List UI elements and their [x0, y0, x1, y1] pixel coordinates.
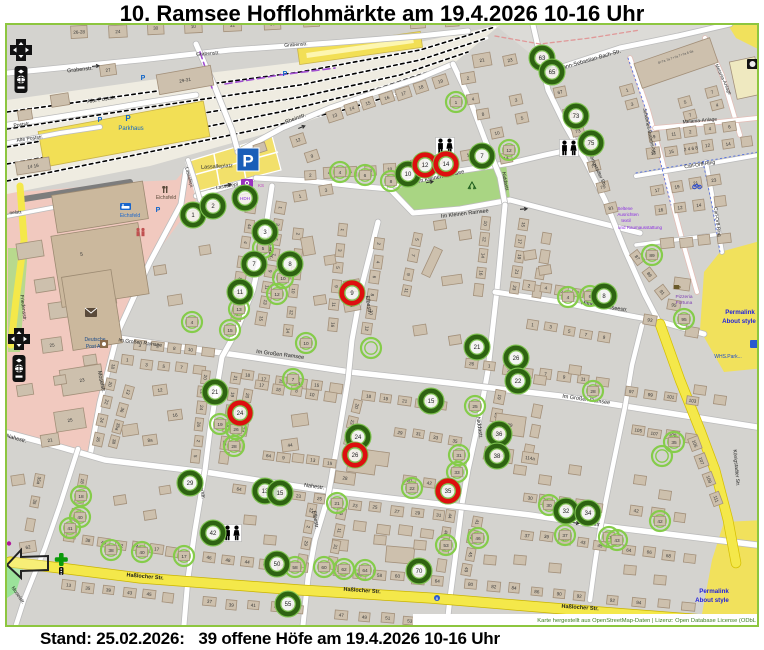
- svg-text:26: 26: [233, 427, 239, 433]
- svg-text:65: 65: [549, 70, 556, 76]
- svg-text:21: 21: [334, 501, 340, 507]
- svg-text:und Raumausstattung: und Raumausstattung: [618, 225, 663, 230]
- svg-text:90: 90: [556, 591, 562, 597]
- svg-text:21: 21: [474, 345, 481, 351]
- svg-text:P: P: [156, 207, 161, 214]
- svg-text:60: 60: [395, 573, 401, 578]
- svg-text:31: 31: [456, 453, 462, 459]
- svg-text:4: 4: [191, 320, 194, 326]
- svg-text:22: 22: [409, 486, 415, 492]
- svg-text:35: 35: [445, 489, 452, 495]
- svg-text:61: 61: [519, 630, 525, 635]
- svg-text:Eichsfeld: Eichsfeld: [156, 195, 177, 201]
- svg-text:30: 30: [153, 25, 159, 30]
- svg-text:18: 18: [78, 494, 84, 500]
- svg-text:15: 15: [428, 399, 435, 405]
- svg-text:75: 75: [588, 141, 595, 147]
- svg-text:37: 37: [562, 533, 568, 539]
- svg-text:43: 43: [614, 538, 620, 544]
- svg-text:64: 64: [435, 578, 441, 583]
- svg-text:40: 40: [77, 515, 83, 521]
- svg-text:34: 34: [585, 511, 592, 517]
- svg-text:73: 73: [573, 114, 580, 120]
- svg-text:WHS.Park...: WHS.Park...: [714, 354, 742, 360]
- svg-text:textil: textil: [621, 218, 630, 223]
- svg-text:19: 19: [217, 422, 223, 428]
- svg-text:26: 26: [513, 356, 520, 362]
- svg-text:24: 24: [355, 435, 362, 441]
- svg-text:26: 26: [352, 453, 359, 459]
- svg-text:55: 55: [285, 602, 292, 608]
- svg-text:24: 24: [199, 405, 205, 411]
- svg-text:Permalink: Permalink: [699, 588, 729, 595]
- svg-text:12: 12: [506, 148, 512, 154]
- svg-text:B: B: [436, 596, 439, 601]
- svg-text:Eichsfeld: Eichsfeld: [120, 213, 141, 219]
- svg-text:95: 95: [681, 317, 687, 323]
- svg-text:60: 60: [321, 565, 327, 571]
- svg-text:Pizzeria: Pizzeria: [675, 294, 692, 300]
- svg-text:42: 42: [210, 531, 217, 537]
- svg-text:8: 8: [390, 179, 393, 185]
- svg-text:Permalink: Permalink: [725, 309, 755, 316]
- svg-text:38: 38: [494, 454, 501, 460]
- svg-text:30: 30: [546, 503, 552, 509]
- svg-text:26-28: 26-28: [73, 29, 85, 35]
- svg-text:14: 14: [443, 162, 450, 168]
- svg-text:89: 89: [649, 253, 655, 259]
- svg-text:HDH: HDH: [240, 196, 250, 201]
- svg-text:KS: KS: [258, 183, 264, 188]
- svg-text:P: P: [242, 152, 253, 171]
- svg-text:15: 15: [277, 491, 284, 497]
- svg-text:37: 37: [207, 599, 213, 604]
- svg-text:21: 21: [212, 390, 219, 396]
- svg-text:22: 22: [515, 379, 522, 385]
- svg-text:7: 7: [292, 377, 295, 383]
- svg-text:58: 58: [377, 573, 383, 578]
- svg-text:10: 10: [303, 341, 309, 347]
- svg-text:Seltene: Seltene: [617, 206, 633, 211]
- svg-text:58: 58: [292, 565, 298, 571]
- svg-text:Fortuna: Fortuna: [676, 300, 693, 306]
- svg-text:Ausrichten: Ausrichten: [617, 212, 639, 217]
- svg-text:4: 4: [339, 170, 342, 176]
- svg-text:14: 14: [285, 328, 291, 334]
- svg-text:P: P: [98, 117, 103, 124]
- svg-text:Karte hergestellt aus OpenStre: Karte hergestellt aus OpenStreetMap-Date…: [537, 618, 756, 624]
- svg-text:17: 17: [181, 554, 187, 560]
- svg-text:28: 28: [590, 389, 596, 395]
- svg-text:P: P: [283, 71, 288, 78]
- svg-text:11: 11: [237, 290, 244, 296]
- svg-text:92: 92: [576, 593, 582, 599]
- svg-text:28: 28: [231, 444, 237, 450]
- svg-text:53: 53: [443, 543, 449, 549]
- svg-text:53: 53: [407, 618, 413, 623]
- svg-text:12: 12: [422, 163, 429, 169]
- svg-text:36: 36: [496, 432, 503, 438]
- svg-text:25: 25: [472, 404, 478, 410]
- svg-text:26: 26: [196, 422, 202, 428]
- svg-text:49: 49: [362, 614, 368, 619]
- svg-text:13: 13: [236, 307, 242, 313]
- svg-text:20: 20: [202, 374, 208, 380]
- svg-text:86: 86: [534, 589, 540, 595]
- svg-text:51: 51: [385, 615, 391, 620]
- svg-text:12: 12: [274, 292, 280, 298]
- svg-text:12: 12: [288, 309, 294, 315]
- svg-text:92: 92: [610, 598, 616, 604]
- svg-text:94: 94: [636, 600, 642, 606]
- svg-text:16: 16: [330, 322, 336, 328]
- svg-text:10: 10: [280, 276, 286, 282]
- svg-text:38: 38: [108, 548, 114, 554]
- svg-text:1: 1: [455, 100, 458, 106]
- svg-text:46: 46: [475, 536, 481, 542]
- svg-text:41: 41: [67, 526, 73, 532]
- svg-text:10: 10: [290, 288, 296, 294]
- svg-text:50: 50: [274, 562, 281, 568]
- svg-text:84: 84: [511, 585, 517, 591]
- svg-text:41: 41: [251, 603, 257, 608]
- svg-text:39: 39: [229, 602, 235, 607]
- svg-text:80: 80: [468, 582, 474, 588]
- svg-text:62: 62: [341, 567, 347, 573]
- svg-text:24: 24: [115, 29, 121, 34]
- svg-text:About style: About style: [722, 318, 756, 325]
- svg-text:64: 64: [362, 568, 368, 574]
- svg-text:47: 47: [339, 612, 345, 617]
- svg-text:40: 40: [139, 550, 145, 556]
- svg-text:P: P: [141, 75, 146, 82]
- svg-text:29: 29: [187, 481, 194, 487]
- svg-text:82: 82: [491, 584, 497, 590]
- svg-text:P: P: [125, 114, 131, 123]
- svg-text:6: 6: [364, 173, 367, 179]
- svg-text:70: 70: [416, 569, 423, 575]
- svg-text:5: 5: [262, 246, 265, 252]
- svg-text:33: 33: [454, 470, 460, 476]
- svg-text:Parkhaus: Parkhaus: [118, 126, 143, 132]
- svg-text:24: 24: [237, 411, 244, 417]
- svg-text:35: 35: [671, 440, 677, 446]
- svg-text:42: 42: [657, 519, 663, 525]
- svg-text:32: 32: [563, 509, 570, 515]
- svg-text:About style: About style: [695, 597, 729, 604]
- svg-text:10: 10: [405, 172, 412, 178]
- svg-text:4: 4: [567, 295, 570, 301]
- svg-text:38: 38: [309, 18, 315, 23]
- svg-text:15: 15: [227, 328, 233, 334]
